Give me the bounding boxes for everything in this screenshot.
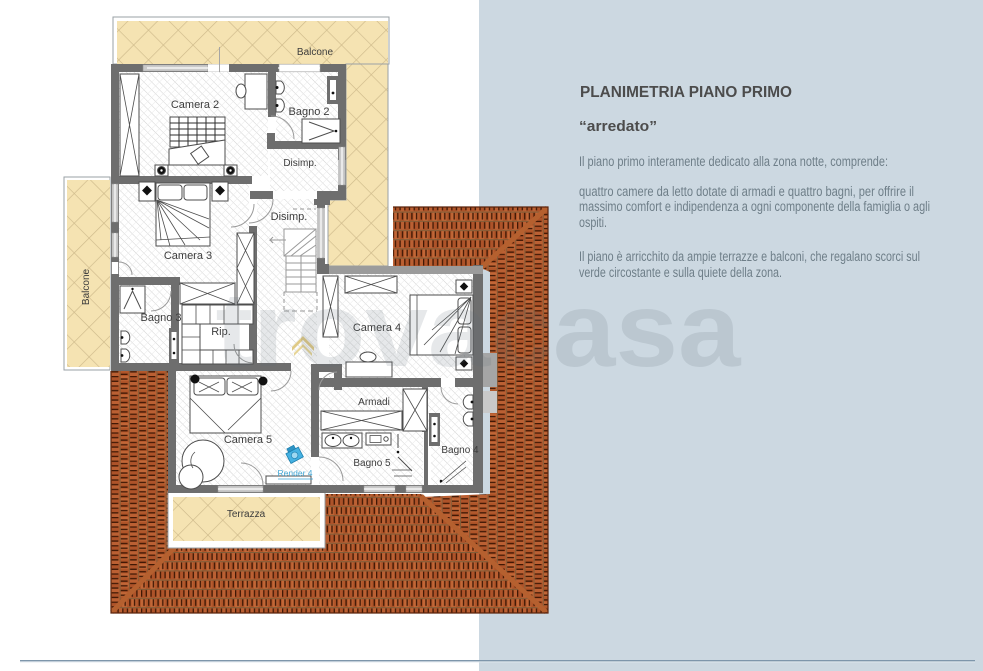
svg-text:verde circostante e sulla quie: verde circostante e sulla quiete della z… <box>579 265 782 280</box>
svg-text:Il piano è arricchito da ampie: Il piano è arricchito da ampie terrazze … <box>579 249 920 264</box>
svg-text:Bagno 4: Bagno 4 <box>441 445 479 456</box>
svg-text:Bagno 2: Bagno 2 <box>289 106 330 118</box>
svg-text:massimo comfort e indipendenza: massimo comfort e indipendenza a ogni co… <box>579 199 930 214</box>
svg-text:“arredato”: “arredato” <box>579 118 657 135</box>
svg-text:Bagno 5: Bagno 5 <box>353 458 391 469</box>
svg-text:Render 4: Render 4 <box>278 468 313 478</box>
svg-text:Il piano primo interamente ded: Il piano primo interamente dedicato alla… <box>579 154 888 169</box>
svg-text:Balcone: Balcone <box>297 47 334 58</box>
svg-text:Terrazza: Terrazza <box>227 509 266 520</box>
svg-text:Camera 5: Camera 5 <box>224 434 272 446</box>
svg-text:trovacasa: trovacasa <box>216 271 742 389</box>
svg-text:quattro camere da letto dotate: quattro camere da letto dotate di armadi… <box>579 184 914 199</box>
svg-text:Armadi: Armadi <box>358 397 390 408</box>
svg-text:ospiti.: ospiti. <box>579 215 607 230</box>
svg-text:Disimp.: Disimp. <box>283 158 316 169</box>
svg-text:PLANIMETRIA PIANO PRIMO: PLANIMETRIA PIANO PRIMO <box>580 84 792 101</box>
svg-text:Camera 3: Camera 3 <box>164 250 212 262</box>
svg-text:Camera 2: Camera 2 <box>171 99 219 111</box>
svg-text:Disimp.: Disimp. <box>271 211 308 223</box>
svg-text:Balcone: Balcone <box>81 268 92 305</box>
svg-text:Bagno 3: Bagno 3 <box>141 312 182 324</box>
